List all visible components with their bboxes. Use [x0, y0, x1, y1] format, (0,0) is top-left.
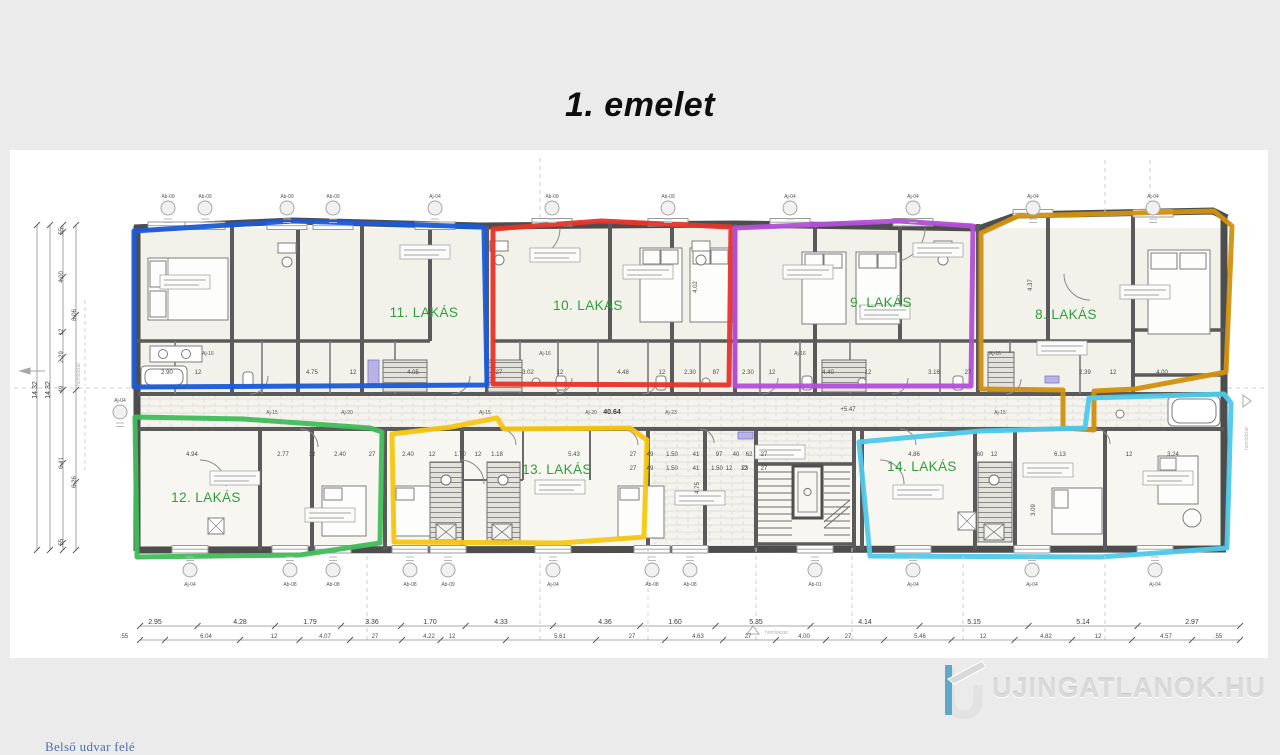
dim-text: 12 — [659, 370, 666, 376]
dim-text: 1.50 — [711, 466, 723, 472]
dim-text: 1.50 — [666, 466, 678, 472]
marker-circle — [326, 563, 340, 577]
marker-circle — [280, 201, 294, 215]
dim-text: 1.70 — [423, 619, 437, 626]
marker-label: Ab-08 — [403, 582, 417, 588]
marker-size-lines — [686, 557, 694, 561]
dim-text: 2.77 — [277, 452, 289, 458]
dim-text: 12 — [741, 466, 748, 472]
marker-circle — [1148, 563, 1162, 577]
dim-text-vertical: 4.02 — [693, 281, 699, 293]
left-total-dim: 14.32 — [32, 381, 39, 399]
marker-label: Ab-01 — [808, 582, 822, 588]
room-label-box — [400, 245, 450, 259]
apartment-label-11: 11. LAKÁS — [390, 305, 459, 320]
marker-label: Aj-04 — [907, 582, 919, 588]
marker-size-lines — [1151, 557, 1159, 561]
dim-text: 4.36 — [598, 619, 612, 626]
marker-size-lines — [1029, 219, 1037, 223]
dim-text: 2.40 — [402, 452, 414, 458]
dim-text: 41 — [693, 466, 700, 472]
dim-text: 12 — [991, 452, 998, 458]
marker-size-lines — [329, 557, 337, 561]
marker-label: Aj-04 — [429, 194, 441, 200]
dim-text: .55 — [120, 634, 129, 640]
marker-circle — [113, 405, 127, 419]
dim-text: 12 — [195, 370, 202, 376]
room-label-box — [535, 480, 585, 494]
dim-text: .55 — [1214, 634, 1223, 640]
dim-text: 4.14 — [858, 619, 872, 626]
level-mark: +5.47 — [840, 407, 856, 413]
dim-text-vertical: 4.75 — [695, 482, 701, 494]
marker-circle — [1026, 201, 1040, 215]
marker-circle — [808, 563, 822, 577]
door-label: Aj-15 — [266, 410, 278, 416]
marker-label: Ab-09 — [661, 194, 675, 200]
marker-circle — [1025, 563, 1039, 577]
dim-text: 27 — [845, 634, 852, 640]
left-total-dim: 14.32 — [45, 381, 52, 399]
door-label: Aj-16 — [989, 351, 1001, 357]
dim-text: 5.43 — [568, 452, 580, 458]
dim-text-vertical: 4.37 — [1028, 279, 1034, 291]
dim-text: 2.90 — [161, 370, 173, 376]
dim-text: 5.46 — [914, 634, 926, 640]
dim-text: 1.60 — [668, 619, 682, 626]
dim-text: 5.35 — [749, 619, 763, 626]
page-title: 1. emelet — [0, 86, 1280, 125]
left-inner-dim: 6.26 — [72, 476, 78, 488]
marker-label: Aj-04 — [784, 194, 796, 200]
dim-text: 5.14 — [1076, 619, 1090, 626]
marker-label: Ab-09 — [280, 194, 294, 200]
dim-text: 87 — [713, 370, 720, 376]
marker-label: Ab-09 — [326, 194, 340, 200]
dim-text: 4.28 — [233, 619, 247, 626]
dim-text: 4.00 — [798, 634, 810, 640]
marker-circle — [183, 563, 197, 577]
room-label-box — [210, 471, 260, 485]
apartment-label-12: 12. LAKÁS — [171, 490, 241, 505]
marker-circle — [428, 201, 442, 215]
left-seg-dim: 4.00 — [59, 271, 65, 283]
marker-circle — [441, 563, 455, 577]
courtyard-label: Belső udvar felé — [45, 739, 135, 755]
marker-size-lines — [811, 557, 819, 561]
marker-label: Ab-09 — [441, 582, 455, 588]
marker-label: Aj-04 — [1026, 582, 1038, 588]
dim-text: 4.33 — [494, 619, 508, 626]
marker-label: Ab-08 — [326, 582, 340, 588]
dim-text: 4.40 — [822, 370, 834, 376]
dim-text: 3.36 — [365, 619, 379, 626]
left-seg-dim: 12 — [59, 328, 65, 335]
dim-text: 3.24 — [1167, 452, 1179, 458]
dim-text: 27 — [496, 370, 503, 376]
marker-circle — [906, 201, 920, 215]
marker-label: Aj-04 — [114, 398, 126, 404]
dim-text: 4.48 — [617, 370, 629, 376]
marker-label: Ab-09 — [198, 194, 212, 200]
floor-plan-svg: UJINGATLANOK.HU — [10, 150, 1268, 658]
door-label: Aj-16 — [202, 351, 214, 357]
dim-text: 49 — [647, 452, 654, 458]
dim-text: 4.07 — [319, 634, 331, 640]
building — [134, 210, 1227, 554]
dim-text: 12 — [557, 370, 564, 376]
dim-text: 12 — [726, 466, 733, 472]
site-watermark: UJINGATLANOK.HU — [942, 656, 1266, 720]
dim-text: 4.22 — [423, 634, 435, 640]
marker-circle — [283, 563, 297, 577]
marker-label: Aj-04 — [1027, 194, 1039, 200]
room-label-box — [1143, 471, 1193, 485]
dim-text: 27 — [369, 452, 376, 458]
facade-label-bottom: homlokzat — [765, 630, 788, 636]
dim-text: 27 — [629, 634, 636, 640]
dim-text: 4.82 — [1040, 634, 1052, 640]
dim-text: 4.94 — [186, 452, 198, 458]
dim-text: 5.15 — [967, 619, 981, 626]
marker-size-lines — [444, 557, 452, 561]
dim-text: 27 — [630, 466, 637, 472]
dim-text: 49 — [647, 466, 654, 472]
door-label: Aj-16 — [539, 351, 551, 357]
room-label-box — [1037, 341, 1087, 355]
left-inner-dim: 8.06 — [72, 309, 78, 321]
dim-text: 6.04 — [200, 634, 212, 640]
marker-circle — [326, 201, 340, 215]
apartment-label-10: 10. LAKÁS — [553, 298, 623, 313]
marker-circle — [906, 563, 920, 577]
facade-label-right: homlokzat — [1244, 427, 1250, 450]
room-label-box — [623, 265, 673, 279]
dim-text: 27 — [965, 370, 972, 376]
dim-text: 2.40 — [334, 452, 346, 458]
room-label-box — [783, 265, 833, 279]
dim-text: 4.05 — [407, 370, 419, 376]
dim-text: 2.95 — [148, 619, 162, 626]
dim-text: 12 — [475, 452, 482, 458]
dim-text: 12 — [980, 634, 987, 640]
marker-label: Aj-04 — [547, 582, 559, 588]
apartment-label-13: 13. LAKÁS — [522, 462, 592, 477]
door-label: Aj-20 — [341, 410, 353, 416]
marker-size-lines — [648, 557, 656, 561]
marker-label: Ab-08 — [283, 582, 297, 588]
marker-label: Ab-09 — [545, 194, 559, 200]
dim-text: 27 — [372, 634, 379, 640]
logo-text: UJINGATLANOK.HU — [992, 673, 1266, 704]
facade-label-left: homlokzat — [76, 363, 82, 386]
door-label: Aj-20 — [585, 410, 597, 416]
dim-text: 12 — [1126, 452, 1133, 458]
marker-label: Ab-08 — [683, 582, 697, 588]
apartment-label-8: 8. LAKÁS — [1035, 307, 1097, 322]
marker-label: Ab-09 — [161, 194, 175, 200]
dim-text: 12 — [309, 452, 316, 458]
dim-text: 41 — [693, 452, 700, 458]
dim-text: 3.16 — [928, 370, 940, 376]
marker-label: Ab-08 — [645, 582, 659, 588]
marker-circle — [545, 201, 559, 215]
marker-circle — [161, 201, 175, 215]
room-label-box — [1120, 285, 1170, 299]
dim-text: 12 — [449, 634, 456, 640]
marker-size-lines — [406, 557, 414, 561]
apartment-label-14: 14. LAKÁS — [887, 459, 957, 474]
room-label-box — [893, 485, 943, 499]
marker-circle — [683, 563, 697, 577]
room-label-box — [1023, 463, 1073, 477]
marker-circle — [403, 563, 417, 577]
apartment-label-9: 9. LAKÁS — [850, 295, 912, 310]
marker-label: Aj-04 — [184, 582, 196, 588]
dim-text: 97 — [716, 452, 723, 458]
corridor-length-dim: 40.64 — [603, 409, 621, 416]
dim-text: 2.30 — [742, 370, 754, 376]
marker-circle — [645, 563, 659, 577]
slide-background: 1. emelet UJINGATLANOK.HU — [0, 0, 1280, 720]
dim-text: 27 — [745, 634, 752, 640]
dim-text: 40 — [733, 452, 740, 458]
dim-text: 27 — [630, 452, 637, 458]
dim-text: 1.70 — [454, 452, 466, 458]
dim-text: 4.75 — [306, 370, 318, 376]
marker-label: Aj-04 — [1147, 194, 1159, 200]
room-label-box — [160, 275, 210, 289]
room-label-box — [913, 243, 963, 257]
dim-text: 27 — [761, 452, 768, 458]
dim-text: 12 — [271, 634, 278, 640]
dim-text: 12 — [1095, 634, 1102, 640]
door-label: Aj-16 — [794, 351, 806, 357]
marker-size-lines — [1149, 219, 1157, 223]
dim-text: 5.61 — [554, 634, 566, 640]
door-label: Aj-23 — [665, 410, 677, 416]
dim-text: 1.50 — [666, 452, 678, 458]
dim-text: 62 — [746, 452, 753, 458]
dim-text: 2.97 — [1185, 619, 1199, 626]
dim-text: 2.30 — [684, 370, 696, 376]
dim-text: 2.39 — [1079, 370, 1091, 376]
dim-text: 4.63 — [692, 634, 704, 640]
marker-circle — [783, 201, 797, 215]
dim-text: 12 — [865, 370, 872, 376]
dim-text: 12 — [769, 370, 776, 376]
marker-label: Aj-04 — [1149, 582, 1161, 588]
marker-size-lines — [549, 557, 557, 561]
dim-text: 4.57 — [1160, 634, 1172, 640]
marker-circle — [661, 201, 675, 215]
marker-circle — [1146, 201, 1160, 215]
dim-text: 60 — [977, 452, 984, 458]
dim-text: 1.79 — [303, 619, 317, 626]
left-seg-dim: 2.29 — [59, 351, 65, 363]
dim-text: 12 — [429, 452, 436, 458]
dim-text: 3.02 — [522, 370, 534, 376]
dim-text: 27 — [761, 466, 768, 472]
room-label-box — [530, 248, 580, 262]
door-label: Aj-15 — [994, 410, 1006, 416]
dim-text: 6.13 — [1054, 452, 1066, 458]
door-label: Aj-15 — [479, 410, 491, 416]
dim-text: 4.86 — [908, 452, 920, 458]
dim-text: 12 — [1110, 370, 1117, 376]
logo-house-icon — [942, 657, 986, 719]
dim-text: 1.18 — [491, 452, 503, 458]
marker-circle — [546, 563, 560, 577]
dim-text: 4.00 — [1156, 370, 1168, 376]
left-seg-dim: 6.41 — [59, 457, 65, 469]
dim-text: 12 — [350, 370, 357, 376]
room-label-box — [305, 508, 355, 522]
marker-label: Aj-04 — [907, 194, 919, 200]
marker-circle — [198, 201, 212, 215]
floorplan-sheet: UJINGATLANOK.HU — [10, 150, 1268, 658]
marker-size-lines — [116, 423, 124, 427]
dim-text-vertical: 3.09 — [1031, 504, 1037, 516]
